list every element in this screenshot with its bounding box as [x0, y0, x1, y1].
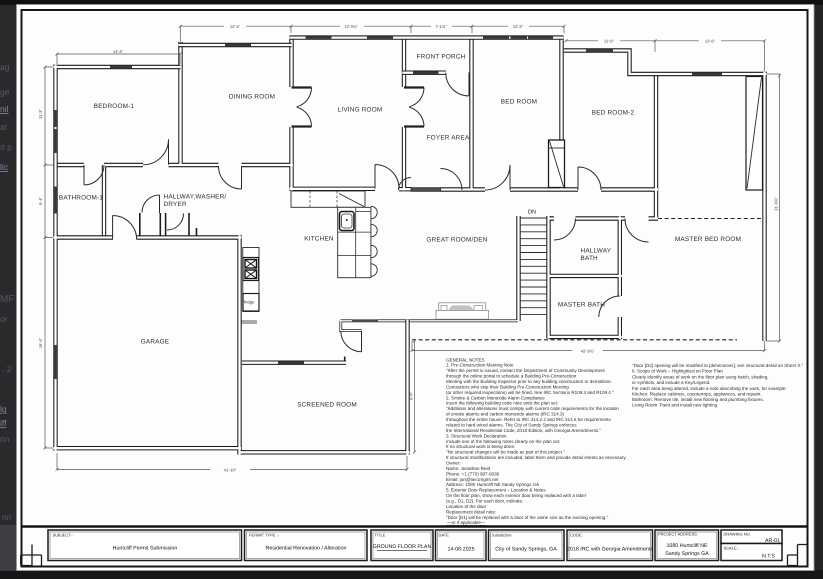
svg-text:ge: ge: [0, 87, 10, 97]
svg-text:MASTER BATH: MASTER BATH: [558, 301, 605, 308]
svg-text:DRAWING NO.: DRAWING NO.: [724, 532, 751, 537]
svg-text:SCALE:-: SCALE:-: [724, 546, 740, 551]
svg-text:PROJECT ADDRESS: PROJECT ADDRESS: [658, 532, 697, 537]
svg-text:12'-2": 12'-2": [513, 24, 524, 29]
svg-text:Insert the following building: Insert the following building code note …: [446, 401, 558, 406]
svg-text:nil: nil: [0, 104, 9, 114]
svg-text:For each area being altered, i: For each area being altered, include a n…: [632, 386, 787, 391]
svg-text:2. Smoke & Carbon Monoxide Ala: 2. Smoke & Carbon Monoxide Alarm Complia…: [446, 395, 545, 400]
svg-text:"Door [D1] will be replaced wi: "Door [D1] will be replaced with a door …: [446, 515, 609, 520]
svg-text:related to hard-wired alarms.: related to hard-wired alarms. The City o…: [446, 423, 577, 428]
svg-text:BEDROOM-1: BEDROOM-1: [94, 103, 135, 110]
svg-text:CODE:: CODE:: [570, 533, 583, 538]
svg-text:12'-6": 12'-6": [604, 39, 615, 44]
svg-text:GENERAL NOTES: GENERAL NOTES: [446, 357, 485, 362]
svg-text:the International Residential: the International Residential Code, 2018…: [446, 428, 601, 433]
svg-text:Email: jon@tier1mgmt.net: Email: jon@tier1mgmt.net: [446, 477, 499, 482]
svg-text:Clearly identify areas of work: Clearly identify areas of work on the fl…: [632, 375, 769, 380]
svg-text:42'-3¾": 42'-3¾": [581, 349, 595, 354]
svg-text:KITCHEN: KITCHEN: [304, 235, 334, 242]
svg-text:SCREENED ROOM: SCREENED ROOM: [297, 401, 357, 408]
svg-text:. 2: . 2: [2, 364, 12, 374]
svg-text:HALLWAY: HALLWAY: [581, 247, 612, 254]
svg-text:or symbols, and include a Key/: or symbols, and include a Key/Legend.: [632, 380, 710, 385]
svg-text:(or other required inspections: (or other required inspections) will be …: [446, 390, 614, 395]
svg-text:Living Room: Paint and install: Living Room: Paint and install new light…: [632, 403, 718, 408]
svg-text:ag: ag: [0, 62, 10, 72]
svg-text:Include one of the following n: Include one of the following notes clear…: [446, 439, 560, 444]
svg-text:MASTER BED ROOM: MASTER BED ROOM: [675, 236, 741, 243]
svg-text:Replacement detail note:: Replacement detail note:: [446, 509, 496, 514]
svg-text:"After the permit is issued, c: "After the permit is issued, contact the…: [446, 368, 606, 373]
svg-text:Meeting with the Building Insp: Meeting with the Building Inspector prio…: [446, 379, 612, 384]
svg-text:On the floor plan, show each e: On the floor plan, show each exterior do…: [446, 493, 586, 498]
svg-text:GREAT ROOM/DEN: GREAT ROOM/DEN: [426, 236, 487, 243]
svg-text:FRONT PORCH: FRONT PORCH: [417, 54, 466, 61]
svg-text:Residential Renovation / Alter: Residential Renovation / Alteration: [266, 546, 347, 552]
svg-text:BATHROOM-1: BATHROOM-1: [59, 195, 103, 202]
svg-text:at: at: [0, 122, 8, 132]
svg-text:Jurisdiction:: Jurisdiction:: [492, 533, 513, 538]
svg-text:"Additions and alterations mus: "Additions and alterations must comply w…: [446, 406, 619, 411]
svg-text:"No structural changes will be: "No structural changes will be made as p…: [446, 450, 565, 455]
svg-text:Bathroom: Remove tile, install: Bathroom: Remove tile, install new floor…: [632, 397, 764, 402]
svg-text:iff: iff: [0, 418, 7, 428]
svg-text:Phone: +1 (770) 987-6036: Phone: +1 (770) 987-6036: [446, 471, 500, 476]
svg-text:12'-4": 12'-4": [230, 24, 241, 29]
svg-text:5. Exterior Door Replacement –: 5. Exterior Door Replacement – Location …: [446, 488, 546, 493]
svg-text:Owner:: Owner:: [446, 461, 461, 466]
svg-text:BATH: BATH: [581, 255, 599, 262]
svg-text:DRYER: DRYER: [164, 201, 187, 208]
svg-text:Sandy Springs GA: Sandy Springs GA: [665, 551, 709, 557]
svg-text:City of Sandy Springs, GA: City of Sandy Springs, GA: [495, 547, 557, 553]
svg-text:11'-3": 11'-3": [38, 108, 43, 118]
svg-text:PERMIT TYPE :-: PERMIT TYPE :-: [249, 533, 280, 538]
svg-text:DN: DN: [528, 210, 536, 216]
svg-text:throughout the entire house. R: throughout the entire house. Refer to IR…: [446, 417, 612, 422]
svg-text:14-08-2025: 14-08-2025: [447, 547, 474, 553]
svg-text:nn: nn: [0, 434, 10, 444]
svg-text:SUBJECT:-: SUBJECT:-: [53, 533, 74, 538]
svg-text:If no structural work is being: If no structural work is being done:: [446, 444, 515, 449]
svg-text:lg: lg: [0, 404, 7, 414]
svg-text:31'-6¾": 31'-6¾": [773, 197, 778, 211]
svg-text:6'-4": 6'-4": [38, 196, 43, 205]
svg-text:MF: MF: [0, 294, 14, 305]
svg-text:BED ROOM: BED ROOM: [501, 99, 537, 106]
svg-text:If structural modifications ar: If structural modifications are included…: [446, 455, 627, 460]
svg-text:3. Structural Work Declaration: 3. Structural Work Declaration: [446, 433, 507, 438]
svg-text:HALLWAY,WASHER/: HALLWAY,WASHER/: [164, 194, 227, 201]
svg-text:2018 IRC with Georgia Amendmen: 2018 IRC with Georgia Amendments: [567, 547, 653, 553]
svg-text:TITLE: TITLE: [375, 533, 386, 538]
svg-text:1080 Huntcliff NE: 1080 Huntcliff NE: [666, 543, 708, 549]
svg-text:GARAGE: GARAGE: [141, 338, 170, 345]
svg-text:6. Scope of Work – Highlighted: 6. Scope of Work – Highlighted on Floor …: [632, 369, 723, 374]
svg-text:GROUND FLOOR PLAN: GROUND FLOOR PLAN: [373, 544, 432, 550]
svg-text:Huntcliff Permit Submission: Huntcliff Permit Submission: [113, 546, 178, 552]
svg-text:d p: d p: [0, 142, 12, 152]
svg-text:1. Pre-Construction Meeting No: 1. Pre-Construction Meeting Note: [446, 363, 514, 368]
svg-text:through the online portal to s: through the online portal to schedule a …: [446, 374, 577, 379]
svg-text:fridge: fridge: [244, 300, 255, 305]
svg-text:14'-4": 14'-4": [113, 49, 124, 54]
svg-text:"Door [D2] opening will be mod: "Door [D2] opening will be modified to […: [632, 363, 804, 368]
svg-text:lic: lic: [0, 162, 9, 172]
svg-text:DATE: DATE: [439, 533, 450, 538]
svg-text:(e.g., D1, D2). For each door,: (e.g., D1, D2). For each door, indicate:: [446, 499, 523, 504]
svg-text:N.T.S: N.T.S: [762, 554, 775, 560]
svg-text:7'-1¾": 7'-1¾": [435, 24, 447, 29]
svg-text:—or if applicable—: —or if applicable—: [447, 520, 486, 525]
svg-text:Kitchen: Replace cabinets, cou: Kitchen: Replace cabinets, countertops, …: [632, 392, 762, 397]
svg-text:Address: 1080 Huntcliff NE San: Address: 1080 Huntcliff NE Sandy Springs…: [446, 482, 540, 487]
svg-text:9'-6": 9'-6": [408, 391, 413, 400]
svg-text:nn: nn: [2, 512, 12, 522]
svg-text:16'-4": 16'-4": [38, 337, 43, 348]
svg-text:of smoke alarms and carbon mon: of smoke alarms and carbon monoxide alar…: [446, 412, 565, 417]
svg-text:41'-10": 41'-10": [224, 467, 237, 472]
svg-text:12'-6": 12'-6": [705, 39, 716, 44]
svg-text:LIVING ROOM: LIVING ROOM: [338, 107, 383, 114]
svg-text:DINING ROOM: DINING ROOM: [229, 94, 275, 101]
svg-text:BED ROOM-2: BED ROOM-2: [592, 110, 635, 117]
svg-text:or: or: [0, 314, 8, 324]
svg-text:Name: Jonathan Reid: Name: Jonathan Reid: [446, 466, 490, 471]
svg-text:Contractors who skip their Bui: Contractors who skip their Building Pre-…: [446, 385, 569, 390]
svg-text:Location of the door: Location of the door: [446, 504, 487, 509]
svg-text:FOYER AREA: FOYER AREA: [427, 135, 470, 142]
svg-text:12'-0½": 12'-0½": [344, 24, 358, 29]
